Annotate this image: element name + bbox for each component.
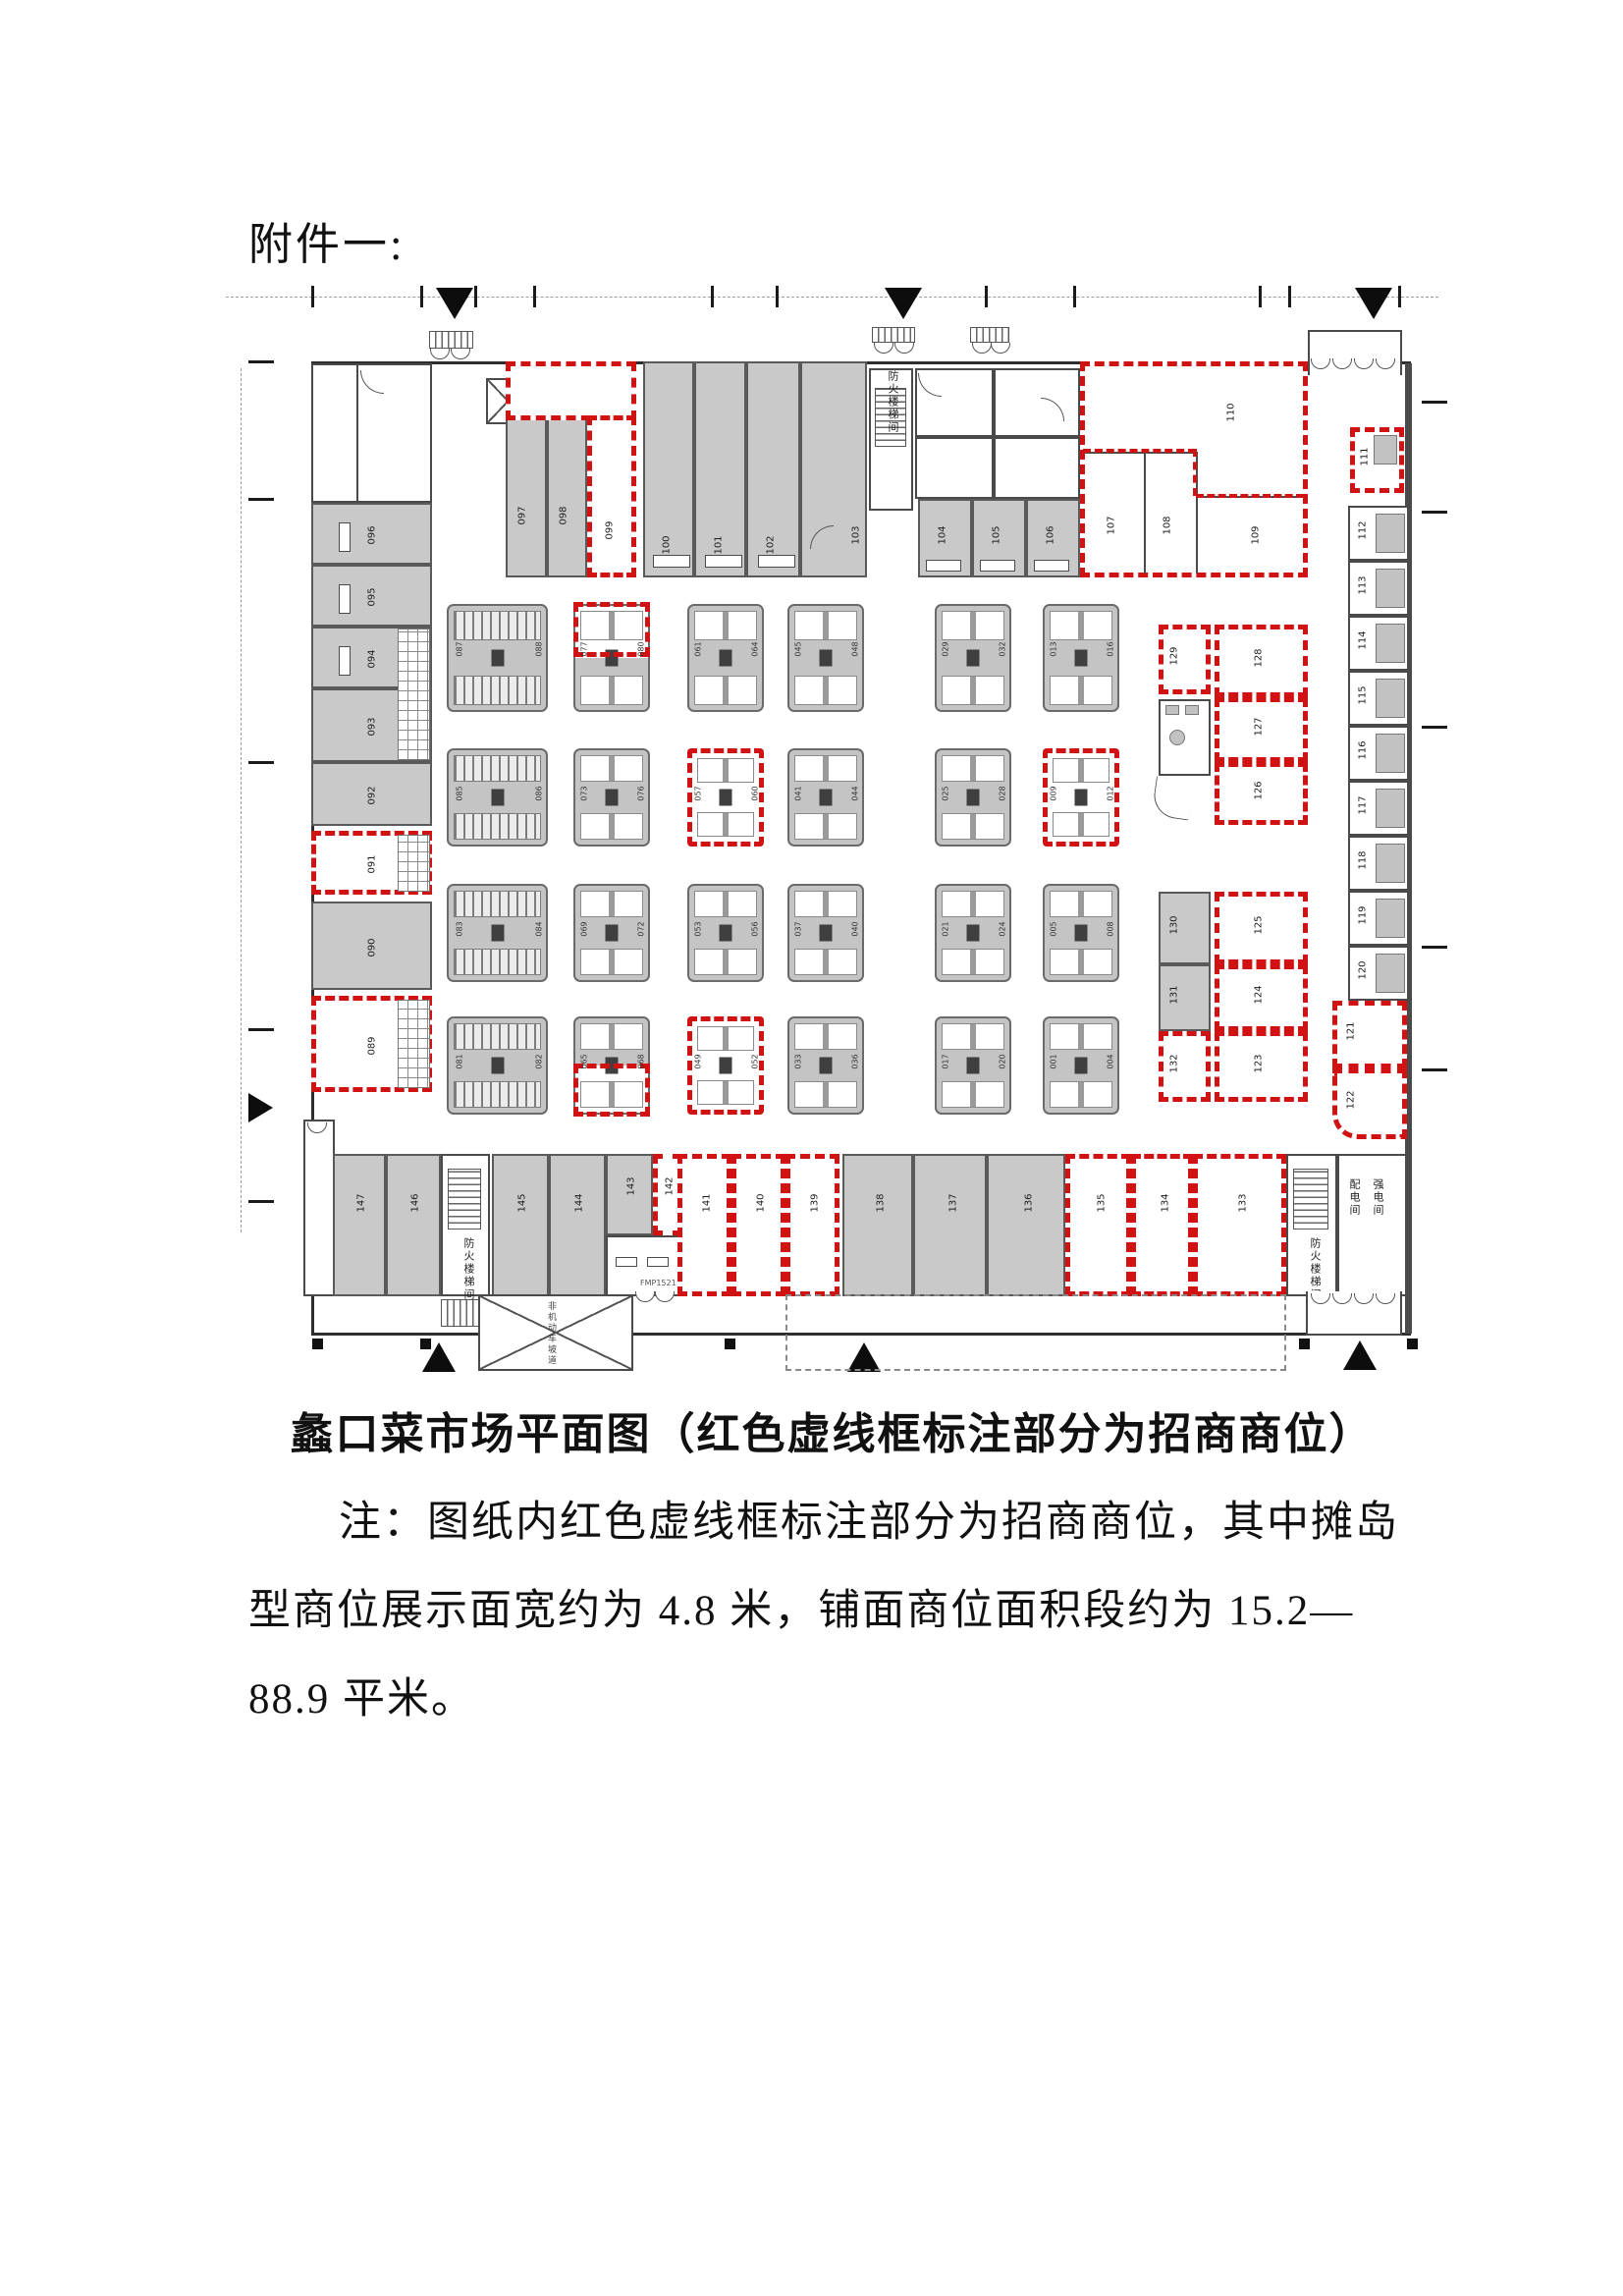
island-a5	[935, 604, 1011, 712]
island-label: 012	[1108, 786, 1115, 800]
stall-label: 117	[1359, 795, 1369, 814]
stall-label: 110	[1227, 403, 1237, 421]
tick	[420, 286, 423, 307]
stall-label: 125	[1255, 915, 1265, 934]
stall-label: 113	[1359, 575, 1369, 594]
tick	[1259, 286, 1262, 307]
island-label: 069	[581, 921, 589, 936]
entrance-arrow-bottom-right	[1343, 1340, 1377, 1370]
tick	[533, 286, 536, 307]
stall-label: 135	[1098, 1193, 1108, 1212]
door-arc	[991, 343, 1010, 354]
stall-label: 096	[368, 525, 378, 544]
stall-label: 100	[663, 535, 673, 554]
tick	[248, 360, 274, 363]
wall	[1085, 452, 1196, 454]
island-a6	[1043, 604, 1119, 712]
tick	[711, 286, 714, 307]
door-arc	[874, 343, 893, 354]
stall-label: 123	[1255, 1054, 1265, 1072]
inner-room	[1376, 899, 1405, 938]
door-arc	[430, 349, 450, 359]
stall-label: 131	[1170, 985, 1180, 1004]
island-label: 080	[638, 641, 646, 656]
stall-label: 146	[411, 1193, 421, 1212]
stall-plate	[758, 555, 795, 568]
island-label: 008	[1108, 921, 1115, 936]
island-label: 049	[695, 1054, 703, 1068]
stall-146	[386, 1154, 441, 1296]
tick	[1422, 401, 1447, 404]
entrance-arrow-top-left	[436, 288, 473, 319]
stall-label: 126	[1255, 781, 1265, 799]
island-label: 032	[1000, 641, 1007, 656]
stall-label: 133	[1239, 1193, 1249, 1212]
stall-137	[913, 1154, 987, 1296]
stall-label: 091	[368, 854, 378, 873]
stall-label: 107	[1108, 516, 1117, 534]
survey-dot	[1407, 1339, 1418, 1349]
island-label: 004	[1108, 1054, 1115, 1068]
stall-label: 128	[1255, 648, 1265, 667]
stall-label: 122	[1347, 1090, 1357, 1109]
tick	[248, 498, 274, 501]
wall	[1196, 496, 1304, 498]
fixture	[1169, 730, 1185, 745]
stall-label: 105	[993, 525, 1002, 544]
stall-plate	[647, 1257, 669, 1267]
door-arc	[451, 349, 470, 359]
inner-room	[1376, 844, 1405, 883]
stall-plate	[616, 1257, 637, 1267]
entrance-arrow-left	[248, 1093, 273, 1122]
office-room	[915, 437, 994, 499]
entrance-arrow-top-middle	[885, 288, 922, 319]
inner-room	[1376, 789, 1405, 828]
note-line-3: 88.9 平米。	[248, 1665, 1454, 1725]
boundary-line-left	[241, 368, 242, 1232]
stall-label: 121	[1347, 1021, 1357, 1040]
stall-plate	[705, 555, 742, 568]
lobby-bottom-left	[303, 1120, 335, 1296]
stall-label: 118	[1359, 850, 1369, 869]
stall-129	[1159, 625, 1211, 694]
island-label: 036	[852, 1054, 860, 1068]
stall-label: 095	[368, 587, 378, 606]
island-label: 001	[1051, 1054, 1058, 1068]
stall-label: 099	[606, 520, 616, 539]
stall-plate	[1034, 560, 1069, 572]
island-label: 053	[695, 921, 703, 936]
stall-label: 127	[1255, 717, 1265, 736]
stall-plate	[926, 560, 961, 572]
stall-plate	[339, 584, 351, 614]
island-label: 085	[457, 786, 464, 800]
island-label: 029	[943, 641, 950, 656]
stall-139	[785, 1154, 839, 1296]
island-label: 072	[638, 921, 646, 936]
stall-136	[987, 1154, 1065, 1296]
island-label: 005	[1051, 921, 1058, 936]
tick	[1422, 726, 1447, 729]
stall-label: 119	[1359, 905, 1369, 924]
tick	[1422, 1068, 1447, 1071]
stall-121	[1332, 1001, 1407, 1068]
island-a3	[687, 604, 764, 712]
island-label: 068	[638, 1054, 646, 1068]
stall-099	[587, 415, 636, 577]
fixture	[1185, 705, 1199, 715]
stall-098	[547, 417, 587, 577]
island-label: 083	[457, 921, 464, 936]
stall-label: 089	[368, 1036, 378, 1055]
stall-shelving	[398, 1000, 430, 1088]
stall-label: 102	[767, 535, 777, 554]
stall-134	[1131, 1154, 1193, 1296]
stall-label: 111	[1361, 447, 1371, 465]
tick	[248, 1028, 274, 1031]
island-label: 016	[1108, 641, 1115, 656]
stall-plate	[339, 522, 351, 552]
island-label: 086	[536, 786, 544, 800]
stairwell-label: 防火楼梯间	[462, 1237, 473, 1301]
stall-label: 109	[1252, 525, 1262, 544]
island-label: 017	[943, 1054, 950, 1068]
island-label: 082	[536, 1054, 544, 1068]
island-label: 045	[795, 641, 803, 656]
tick	[1288, 286, 1291, 307]
stall-132	[1159, 1031, 1211, 1102]
stall-label: 116	[1359, 740, 1369, 759]
stall-135	[1065, 1154, 1131, 1296]
stall-label: 103	[852, 525, 862, 544]
stall-label: 094	[368, 649, 378, 668]
inner-room	[1376, 569, 1405, 608]
stall-label: 137	[949, 1193, 959, 1212]
stall-130	[1159, 892, 1211, 964]
island-label: 033	[795, 1054, 803, 1068]
utility-rooms	[1337, 1154, 1407, 1296]
stall-label: 134	[1162, 1193, 1171, 1212]
stall-label: 130	[1170, 915, 1180, 934]
stall-label: 143	[627, 1176, 637, 1195]
island-label: 064	[752, 641, 760, 656]
stall-label: 129	[1170, 646, 1180, 665]
stall-label: 120	[1359, 960, 1369, 979]
island-label: 041	[795, 786, 803, 800]
stall-144	[549, 1154, 606, 1296]
stall-131	[1159, 964, 1211, 1031]
island-label: 076	[638, 786, 646, 800]
office-room	[994, 437, 1080, 499]
power-room-label: 配电间	[1348, 1178, 1359, 1217]
awning-outline	[785, 1294, 1286, 1371]
island-label: 056	[752, 921, 760, 936]
stall-label: 132	[1170, 1054, 1180, 1072]
island-label: 052	[752, 1054, 760, 1068]
office-room	[994, 368, 1080, 437]
survey-dot	[312, 1339, 323, 1349]
stall-label: 106	[1047, 525, 1056, 544]
island-label: 020	[1000, 1054, 1007, 1068]
stall-145	[492, 1154, 549, 1296]
inner-room	[1376, 679, 1405, 718]
door-arc	[972, 343, 992, 354]
stall-122	[1332, 1068, 1407, 1139]
tick	[776, 286, 779, 307]
entry-steps	[429, 331, 473, 349]
entrance-arrow-top-right	[1355, 288, 1392, 319]
tick	[985, 286, 988, 307]
note-line-2: 型商位展示面宽约为 4.8 米，铺面商位面积段约为 15.2—	[248, 1576, 1454, 1637]
stall-label: 090	[368, 938, 378, 957]
inner-room	[1376, 734, 1405, 773]
island-label: 028	[1000, 786, 1007, 800]
ramp-label: 非机动车坡道	[547, 1301, 556, 1366]
tick	[1398, 286, 1401, 307]
stall-label: 092	[368, 786, 378, 804]
island-label: 044	[852, 786, 860, 800]
island-a1	[447, 604, 548, 712]
island-label: 088	[536, 641, 544, 656]
island-label: 025	[943, 786, 950, 800]
tick	[248, 1200, 274, 1203]
stall-shelving	[398, 629, 430, 760]
stairwell-label: 防火楼梯间	[887, 370, 897, 434]
door-arc	[894, 343, 914, 354]
stall-label: 138	[877, 1193, 887, 1212]
tick	[1422, 511, 1447, 514]
stall-label: 097	[518, 506, 528, 524]
stall-141	[677, 1154, 731, 1296]
island-label: 037	[795, 921, 803, 936]
island-label: 021	[943, 921, 950, 936]
island-label: 077	[581, 641, 589, 656]
note-line-1: 注：图纸内红色虚线框标注部分为招商商位，其中摊岛	[339, 1488, 1544, 1549]
survey-dot	[420, 1339, 431, 1349]
suite-107-110	[1080, 361, 1308, 577]
stall-plate	[980, 560, 1015, 572]
stall-label: 136	[1025, 1193, 1035, 1212]
island-label: 061	[695, 641, 703, 656]
stall-label: 144	[575, 1193, 585, 1212]
stall-label: 142	[666, 1176, 676, 1195]
stall-138	[842, 1154, 913, 1296]
island-label: 009	[1051, 786, 1058, 800]
tick	[1422, 946, 1447, 949]
stall-147	[333, 1154, 386, 1296]
stall-label: 093	[368, 717, 378, 736]
island-label: 065	[581, 1054, 589, 1068]
stall-label: 098	[560, 506, 569, 524]
island-label: 087	[457, 641, 464, 656]
island-label: 048	[852, 641, 860, 656]
figure-caption: 蠡口菜市场平面图（红色虚线框标注部分为招商商位）	[211, 1398, 1453, 1461]
stall-label: 112	[1359, 520, 1369, 539]
annex-room-left	[311, 363, 358, 503]
stall-label: 124	[1255, 985, 1265, 1004]
entry-steps	[970, 327, 1009, 343]
tick	[474, 286, 477, 307]
island-label: 024	[1000, 921, 1007, 936]
survey-dot	[725, 1339, 735, 1349]
island-a2	[573, 604, 650, 712]
wall	[1196, 452, 1198, 574]
wall	[1144, 452, 1146, 574]
stall-plate	[339, 646, 351, 676]
inner-room	[1376, 514, 1405, 553]
fixture	[1165, 705, 1179, 715]
tick	[1073, 286, 1076, 307]
island-label: 057	[695, 786, 703, 800]
stall-label: 139	[811, 1193, 821, 1212]
stall-label: 104	[939, 525, 948, 544]
island-label: 081	[457, 1054, 464, 1068]
document-page: 附件一:	[0, 0, 1623, 2296]
island-label: 013	[1051, 641, 1058, 656]
stall-plate	[653, 555, 690, 568]
stall-label: 115	[1359, 685, 1369, 704]
stall-label: 141	[703, 1193, 713, 1212]
strong-power-room-label: 强电间	[1372, 1178, 1382, 1217]
stall-133	[1193, 1154, 1286, 1296]
boundary-line-top	[226, 297, 1438, 298]
fire-door-label: FMP1521	[640, 1280, 676, 1287]
survey-dot	[1299, 1339, 1310, 1349]
entry-steps	[441, 1299, 480, 1327]
stall-label: 147	[357, 1193, 367, 1212]
stair-treads	[448, 1169, 481, 1230]
stair-treads	[1293, 1169, 1328, 1230]
attachment-label: 附件一:	[248, 208, 406, 272]
floor-plan: 防火楼梯间	[211, 280, 1453, 1385]
stall-label: 140	[757, 1193, 767, 1212]
island-label: 073	[581, 786, 589, 800]
island-label: 060	[752, 786, 760, 800]
inner-room	[1376, 624, 1405, 663]
island-a4	[787, 604, 864, 712]
entry-steps	[872, 327, 915, 343]
inner-room	[1374, 435, 1397, 465]
stall-label: 114	[1359, 630, 1369, 649]
stall-label: 145	[518, 1193, 528, 1212]
stall-140	[731, 1154, 785, 1296]
stall-099-red-top	[506, 361, 636, 420]
tick	[248, 761, 274, 764]
stall-label: 101	[715, 535, 725, 554]
inner-room	[1376, 954, 1405, 993]
island-label: 084	[536, 921, 544, 936]
stall-shelving	[398, 835, 430, 892]
stall-097	[506, 417, 547, 577]
stall-label: 108	[1163, 516, 1173, 534]
tick	[311, 286, 314, 307]
island-label: 040	[852, 921, 860, 936]
